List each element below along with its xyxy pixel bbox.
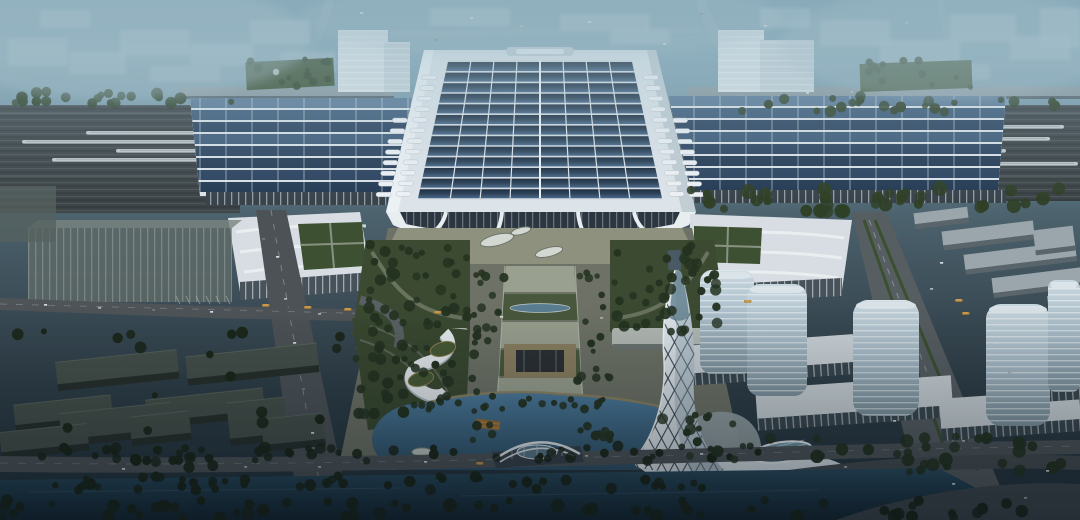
tower-roof — [1051, 282, 1077, 289]
tree — [720, 205, 728, 213]
tree — [387, 273, 396, 282]
tree — [598, 292, 605, 299]
tree — [489, 292, 496, 299]
scene-canvas — [0, 0, 1080, 520]
tree — [614, 249, 622, 257]
tree — [367, 287, 375, 295]
tree — [435, 284, 446, 295]
tree — [681, 276, 690, 285]
car — [284, 298, 287, 300]
tree — [800, 205, 812, 217]
tree — [704, 276, 711, 283]
tree — [443, 258, 453, 268]
tree — [710, 270, 720, 280]
tree — [477, 280, 483, 286]
tree — [444, 244, 452, 252]
tree — [405, 247, 413, 255]
tree — [667, 273, 677, 283]
tree — [611, 279, 617, 285]
tree — [815, 205, 828, 218]
tree — [711, 279, 721, 289]
axis-segment — [504, 266, 576, 292]
tree — [412, 273, 420, 281]
car — [940, 262, 943, 264]
tree — [413, 252, 420, 259]
tree — [662, 293, 670, 301]
tree — [380, 246, 391, 257]
tree — [450, 293, 456, 299]
tree — [697, 287, 705, 295]
tree — [645, 285, 653, 293]
tree — [365, 240, 374, 249]
tree — [974, 201, 986, 213]
car — [276, 256, 279, 258]
tree — [419, 250, 425, 256]
tower-roof — [750, 286, 804, 293]
tree — [388, 258, 398, 268]
tree — [371, 258, 379, 266]
tree — [499, 273, 508, 282]
tree — [629, 292, 637, 300]
tree — [836, 204, 850, 218]
tree — [686, 242, 695, 251]
tree — [452, 269, 461, 278]
tree — [684, 258, 695, 269]
tree — [473, 272, 479, 278]
tree — [399, 244, 405, 250]
tree — [577, 273, 584, 280]
tree — [463, 254, 470, 261]
car — [262, 238, 265, 240]
car — [930, 288, 933, 290]
tree — [646, 265, 653, 272]
tree — [583, 269, 590, 276]
aerial-render — [0, 0, 1080, 520]
tree — [914, 200, 923, 209]
tree — [663, 254, 672, 263]
tree — [422, 272, 429, 279]
warehouse — [1033, 226, 1076, 256]
tree — [1007, 199, 1021, 213]
tree — [375, 274, 386, 285]
tree — [478, 269, 485, 276]
tree — [594, 273, 600, 279]
tree — [656, 279, 663, 286]
